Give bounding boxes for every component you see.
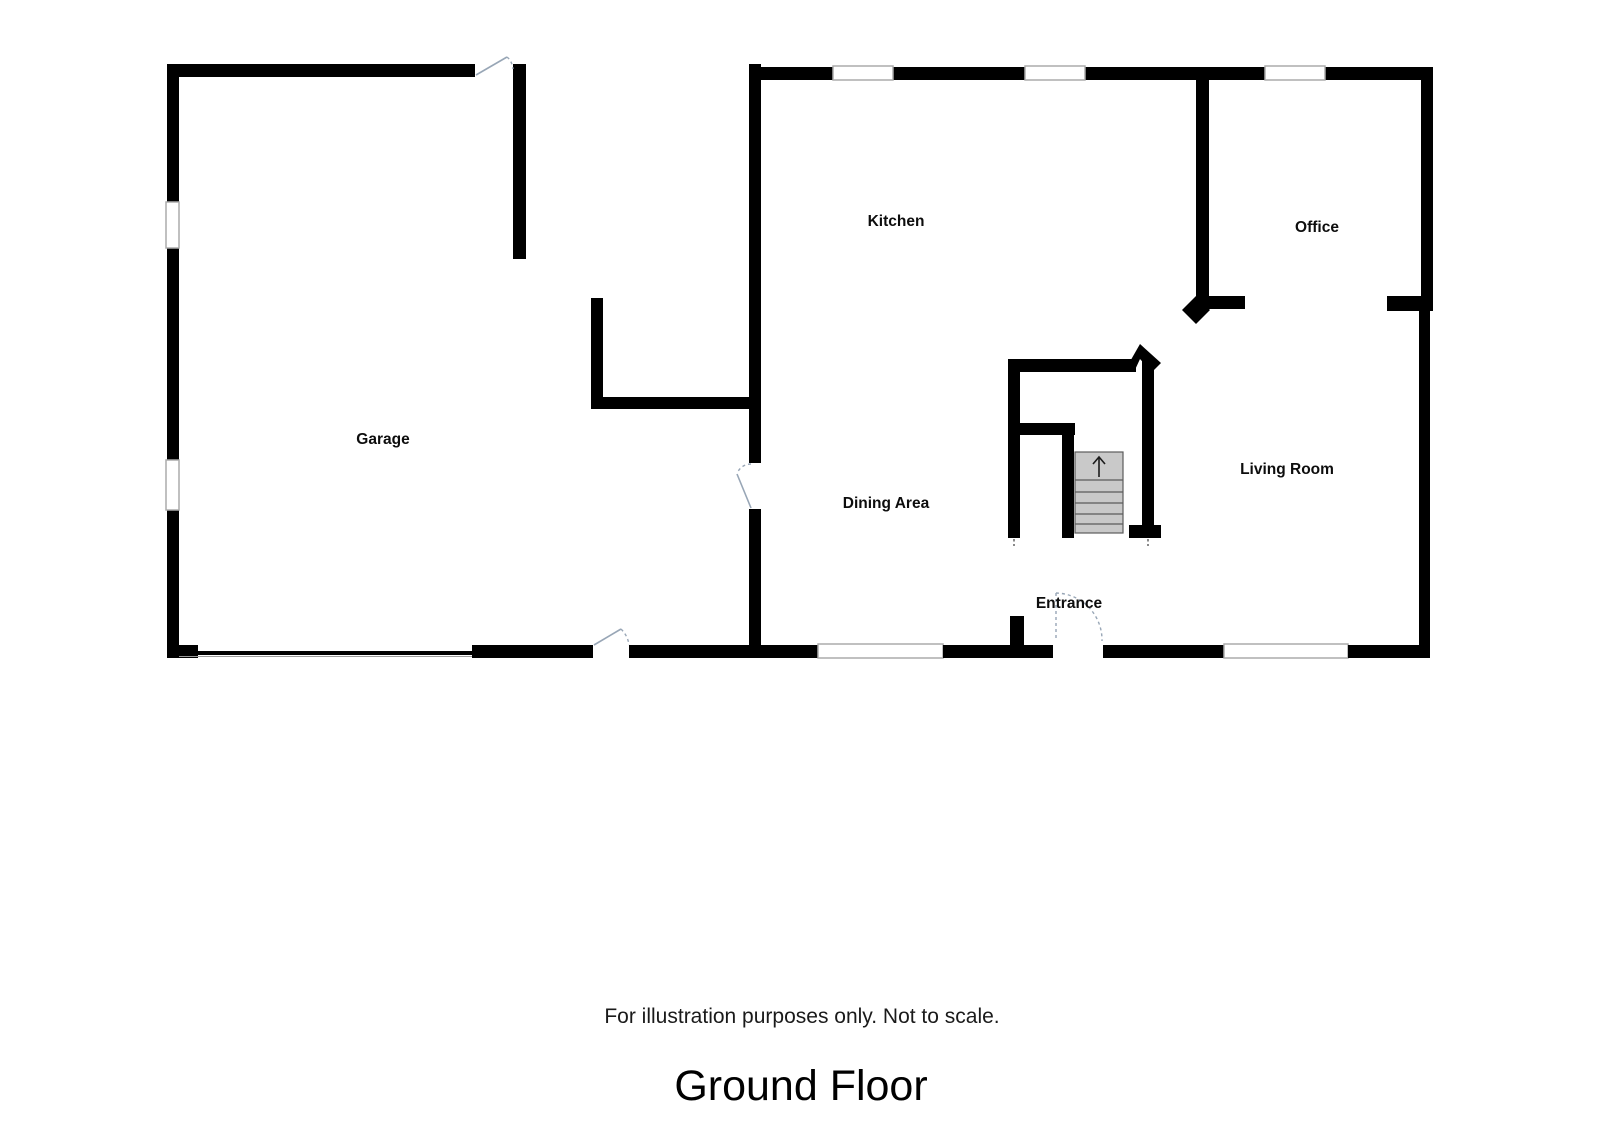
- door-swing-arc: [621, 629, 629, 645]
- wall: [1196, 80, 1209, 296]
- wall: [1062, 423, 1074, 538]
- wall: [513, 64, 526, 259]
- wall: [1387, 296, 1433, 311]
- wall: [749, 67, 1208, 80]
- garage-door-line: [198, 651, 472, 655]
- wall: [1008, 359, 1136, 372]
- window: [1025, 66, 1085, 80]
- floor-plan-page: Garage Kitchen Office Dining Area Living…: [0, 0, 1600, 1131]
- dining-door: [737, 464, 751, 508]
- office-window: [1265, 66, 1325, 80]
- garage-top-door: [476, 57, 513, 75]
- back-door: [594, 629, 629, 645]
- wall: [167, 64, 475, 77]
- room-label-garage: Garage: [356, 431, 410, 448]
- disclaimer-text: For illustration purposes only. Not to s…: [604, 1005, 999, 1028]
- door-swing-arc: [737, 464, 751, 473]
- diagonal-wall: [517, 251, 599, 304]
- room-label-living: Living Room: [1240, 461, 1334, 478]
- window: [1224, 644, 1348, 658]
- wall: [1129, 525, 1161, 538]
- wall: [749, 64, 761, 463]
- office-walls: [1208, 67, 1433, 658]
- window: [166, 460, 179, 510]
- window: [833, 66, 893, 80]
- wall: [1142, 358, 1154, 538]
- wall: [1008, 359, 1020, 538]
- window: [166, 202, 179, 248]
- door-swing-arc: [507, 57, 513, 69]
- wall: [629, 645, 818, 658]
- wall: [591, 298, 603, 409]
- room-label-dining: Dining Area: [843, 495, 930, 512]
- wall: [1421, 67, 1433, 309]
- garage-walls: [167, 64, 761, 658]
- wall: [1419, 309, 1430, 658]
- kitchen-walls: [749, 64, 1245, 658]
- wall: [472, 645, 593, 658]
- window: [818, 644, 943, 658]
- wall: [943, 645, 1053, 658]
- room-label-office: Office: [1295, 219, 1339, 236]
- staircase: [1075, 452, 1123, 533]
- door-leaf: [737, 474, 751, 508]
- wall: [1103, 645, 1224, 658]
- room-labels: Garage Kitchen Office Dining Area Living…: [356, 213, 1339, 612]
- page-title: Ground Floor: [674, 1062, 927, 1110]
- room-label-entrance: Entrance: [1036, 595, 1103, 612]
- door-leaf: [476, 57, 507, 75]
- floor-plan-drawing: Garage Kitchen Office Dining Area Living…: [0, 0, 1600, 1131]
- room-label-kitchen: Kitchen: [868, 213, 925, 230]
- wall: [167, 64, 179, 658]
- wall: [749, 509, 761, 658]
- wall: [1348, 645, 1429, 658]
- wall: [591, 397, 761, 409]
- entrance-stub-wall: [1010, 616, 1024, 645]
- window: [1265, 66, 1325, 80]
- door-leaf: [594, 629, 621, 645]
